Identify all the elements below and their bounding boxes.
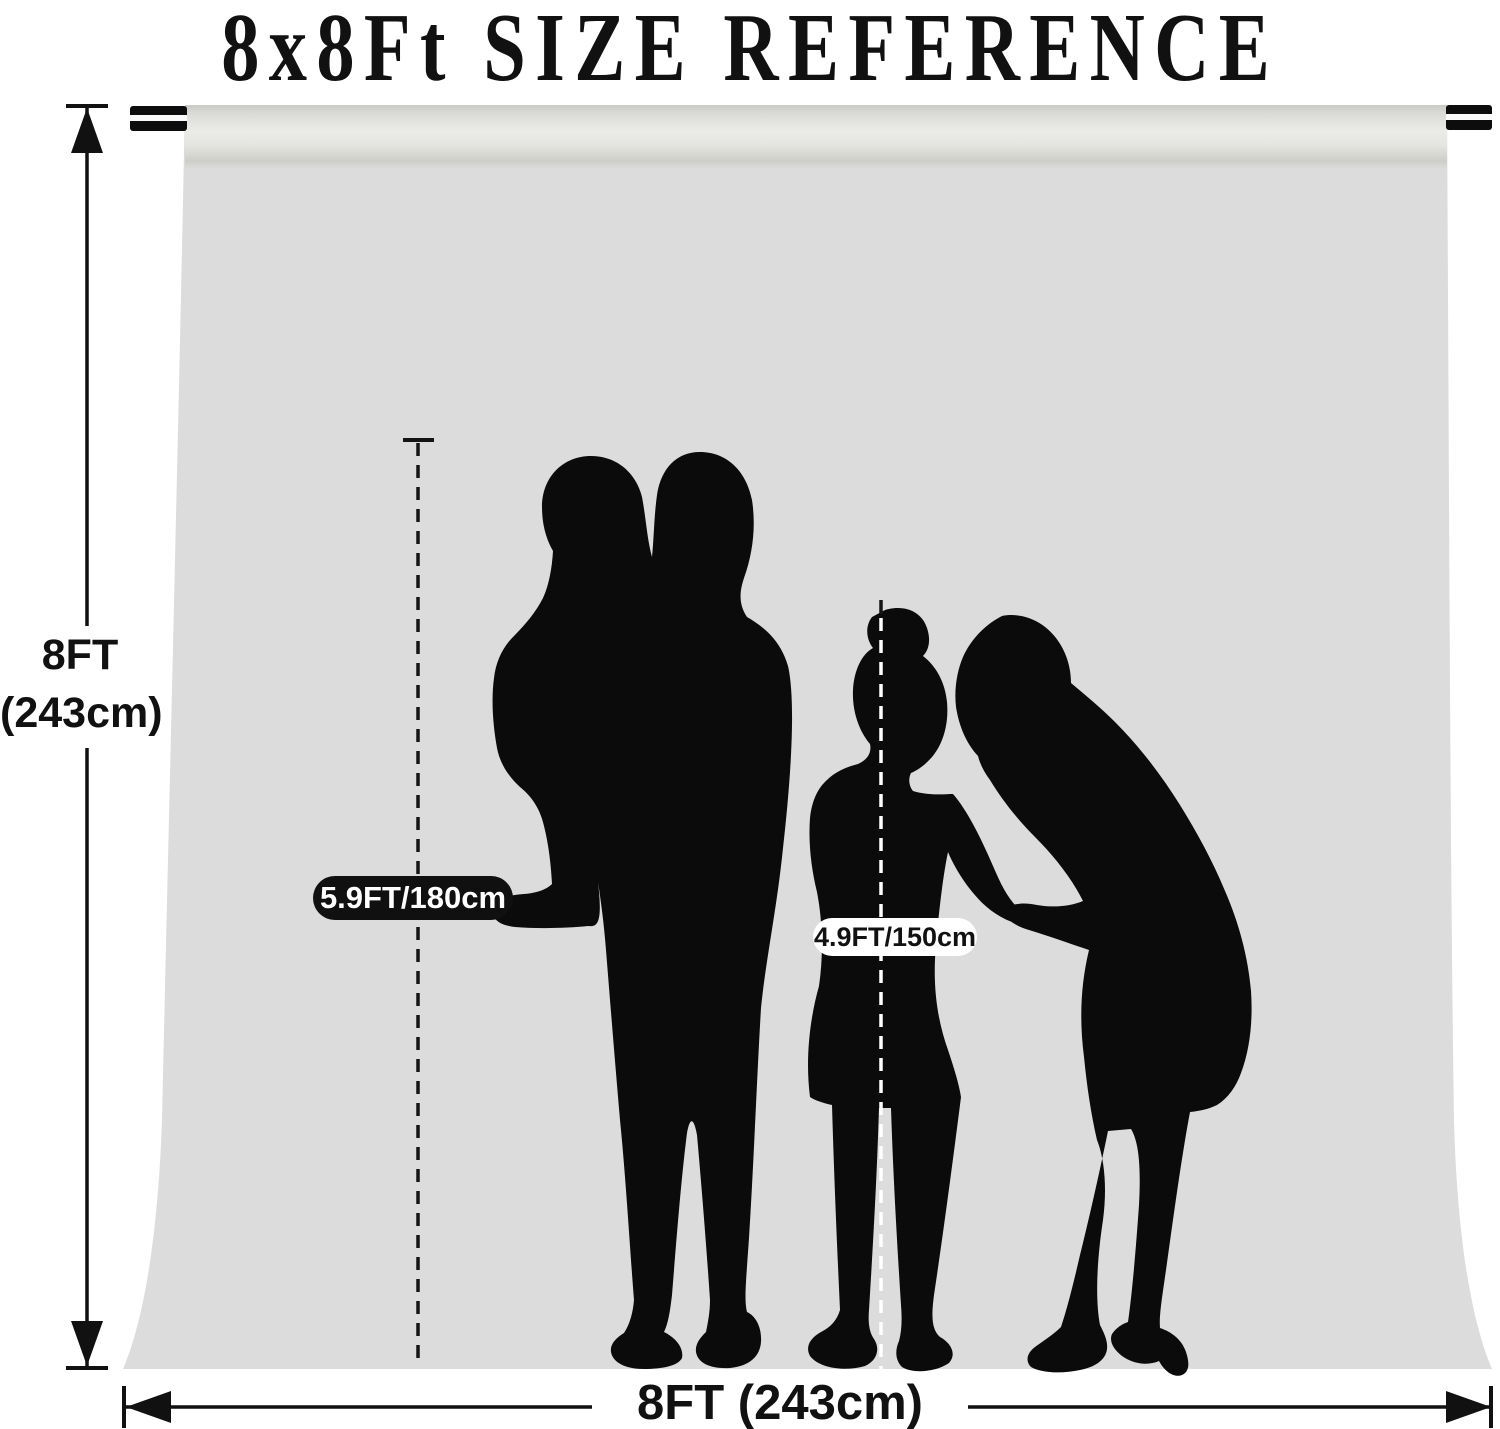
- height-dimension-label: 8FT (243cm): [0, 626, 160, 748]
- size-reference-diagram: 8x8Ft SIZE REFERENCE: [0, 0, 1500, 1429]
- width-dimension-label: 8FT (243cm): [592, 1374, 968, 1429]
- backdrop-fabric: [123, 105, 1492, 1369]
- height-ft-text: 8FT: [0, 626, 160, 684]
- adult-height-badge: 5.9FT/180cm: [313, 876, 513, 920]
- crossbar-rod-left: [130, 106, 187, 131]
- child-height-badge: 4.9FT/150cm: [813, 918, 977, 956]
- backdrop-roll-top: [185, 105, 1447, 169]
- height-cm-text: (243cm): [0, 684, 160, 742]
- crossbar-rod-right: [1446, 105, 1492, 130]
- scene-graphic: [0, 0, 1500, 1429]
